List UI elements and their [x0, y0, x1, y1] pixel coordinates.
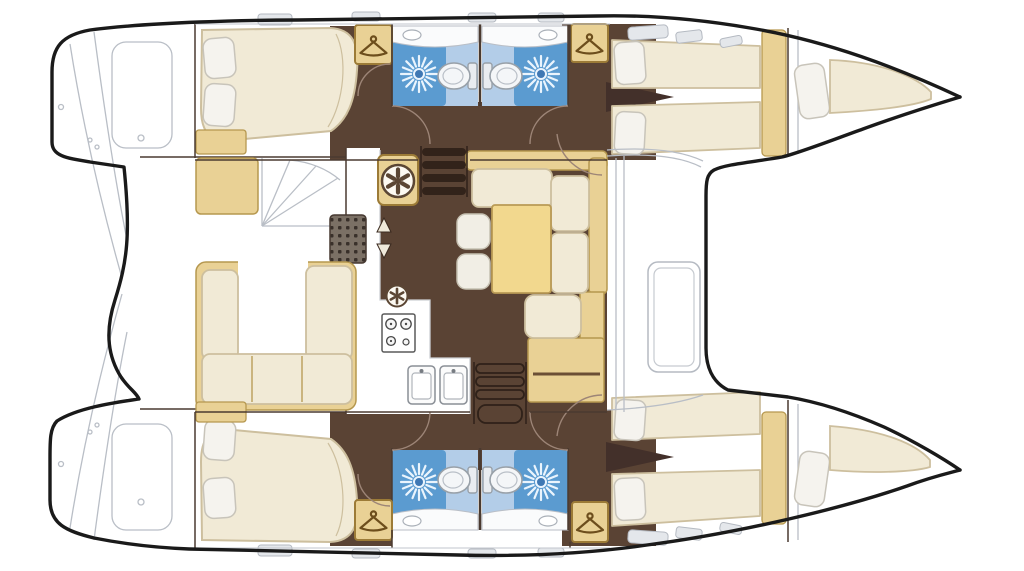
basin [539, 516, 557, 526]
shower-icon [523, 56, 559, 92]
shower-icon [401, 464, 437, 500]
shower-icon [523, 464, 559, 500]
floorplan-image [0, 0, 1024, 571]
basin [539, 30, 557, 40]
pillow [203, 477, 237, 519]
wardrobe [571, 24, 608, 62]
dinette-cushion [551, 176, 589, 231]
pillow [614, 41, 647, 85]
pillow [793, 450, 830, 508]
pillow [793, 62, 830, 120]
sofa-cushion [306, 266, 352, 360]
pillow [614, 399, 647, 441]
dinette-cushion [551, 233, 588, 293]
pillow [203, 419, 237, 461]
bed-shelf [196, 130, 246, 154]
helm-fan-icon [378, 155, 418, 205]
nav-bench [528, 338, 604, 402]
deck-hatch-icon [628, 25, 669, 41]
toilet-icon [438, 467, 477, 493]
stool [457, 254, 490, 289]
berth-foot-board [762, 30, 786, 156]
shower-icon [401, 56, 437, 92]
starboard-bathrooms [392, 448, 568, 530]
pillow [614, 111, 646, 155]
toilet-icon [483, 467, 522, 493]
cockpit-sofa [196, 258, 356, 410]
pillow [202, 37, 236, 80]
basin [403, 30, 421, 40]
pillow [203, 83, 237, 127]
port-bathrooms [392, 24, 568, 106]
basin [403, 516, 421, 526]
sink-icon [440, 366, 467, 404]
dinette-cushion [472, 169, 552, 207]
sofa-back [589, 158, 607, 294]
cockpit-grate [330, 215, 366, 263]
nav-cushion [525, 295, 581, 338]
wardrobe [572, 502, 608, 542]
sofa-cushion [202, 354, 352, 404]
pillow [614, 477, 646, 521]
galley-fan-icon [387, 286, 408, 307]
cockpit-bench [196, 158, 258, 214]
dinette-table [492, 205, 551, 293]
stool [457, 214, 490, 249]
stove-icon [382, 314, 415, 352]
sofa-cushion [202, 270, 238, 360]
wardrobe [355, 25, 392, 64]
toilet-icon [483, 63, 522, 89]
toilet-icon [438, 63, 477, 89]
sink-icon [408, 366, 435, 404]
nav-seat-back [580, 292, 604, 340]
berth-foot-board [762, 412, 786, 524]
